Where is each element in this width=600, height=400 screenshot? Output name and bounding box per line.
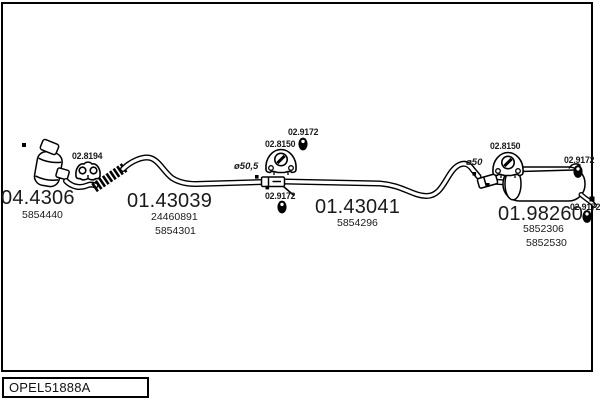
fitting-code-hanger-centre[interactable]: 02.8150 <box>265 140 295 150</box>
catalytic-converter-drawing <box>22 139 70 188</box>
part-code-centre-pipe[interactable]: 01.43041 <box>315 197 400 217</box>
grommet-icon <box>277 201 286 214</box>
diameter-label-centre: ø50 <box>466 158 482 168</box>
part-number: 5854440 <box>22 210 63 221</box>
hanger-icon <box>266 150 296 176</box>
part-number: 5852306 <box>523 224 564 235</box>
centre-pipe-drawing <box>284 164 479 196</box>
fitting-code-grommet-centre-top[interactable]: 02.9172 <box>288 128 318 138</box>
diameter-label-front: ø50,5 <box>234 162 258 172</box>
fitting-code-grommet-rear-top[interactable]: 02.9172 <box>564 156 594 166</box>
part-number: 5852530 <box>526 238 567 249</box>
drawing-code-box: OPEL51888A <box>2 377 149 398</box>
part-number: 5854296 <box>337 218 378 229</box>
diagram-line-art <box>0 0 600 400</box>
grommet-icon <box>573 165 582 178</box>
fitting-code-grommet-centre[interactable]: 02.9172 <box>265 192 295 202</box>
part-code-front-pipe[interactable]: 01.43039 <box>127 191 212 211</box>
clamp-icon <box>76 162 100 180</box>
drawing-code: OPEL51888A <box>9 380 91 395</box>
exhaust-system-diagram: 02.8194 02.8150 02.9172 02.9172 02.8150 … <box>0 0 600 400</box>
part-number: 24460891 <box>151 212 198 223</box>
part-code-rear-silencer[interactable]: 01.98260 <box>498 204 583 224</box>
part-number: 5854301 <box>155 226 196 237</box>
fitting-code-hanger-rear[interactable]: 02.8150 <box>490 142 520 152</box>
part-code-catalytic-converter[interactable]: 04.4306 <box>1 188 75 208</box>
hanger-icon <box>493 153 523 179</box>
grommet-icon <box>298 138 307 151</box>
fitting-code-clamp[interactable]: 02.8194 <box>72 152 102 162</box>
